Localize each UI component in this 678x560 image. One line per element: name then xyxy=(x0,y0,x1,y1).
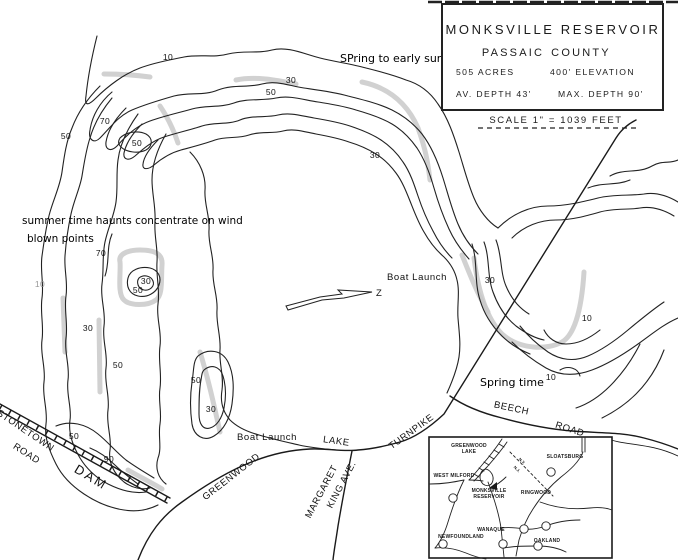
inset-sloatsburg-label: SLOATSBURG xyxy=(547,454,584,460)
depth-label: 50 xyxy=(61,131,71,141)
route-shield-icon xyxy=(520,525,528,533)
contour-line xyxy=(41,86,158,511)
inset-wanaque-label: WANAQUE xyxy=(477,527,505,533)
beech-road-line xyxy=(606,438,678,456)
highlight-stroke xyxy=(99,320,100,392)
route-shield-icon xyxy=(499,540,507,548)
contour-line xyxy=(576,344,640,408)
contour-line xyxy=(610,160,678,176)
depth-label: 10 xyxy=(35,279,45,289)
depth-label: 10 xyxy=(582,313,592,323)
greenwood-road-label: GREENWOOD xyxy=(201,451,263,503)
depth-label: 70 xyxy=(100,116,110,126)
route-shield-icon xyxy=(439,540,447,548)
title-box-elevation: 400' ELEVATION xyxy=(550,67,635,77)
depth-label: 30 xyxy=(83,323,93,333)
lake-road-label: LAKE xyxy=(322,434,350,449)
title-box-title: MONKSVILLE RESERVOIR xyxy=(445,22,660,37)
depth-label: 50 xyxy=(266,87,276,97)
inset-map: GREENWOOD LAKE SLOATSBURG WEST MILFORD M… xyxy=(429,437,612,559)
inset-greenwood-label2: LAKE xyxy=(462,449,477,455)
route-shield-icon xyxy=(542,522,550,530)
monksville-reservoir-map: Z 10 30 50 70 50 50 30 70 10 30 50 30 50… xyxy=(0,0,678,560)
inset-west-milford-label: WEST MILFORD xyxy=(433,473,474,479)
beech-road-label: BEECH xyxy=(493,399,530,417)
north-arrow: Z xyxy=(286,288,382,310)
boat-launch-label: Boat Launch xyxy=(387,272,447,283)
depth-label: 30 xyxy=(485,275,495,285)
depth-label: 50 xyxy=(113,360,123,370)
depth-label: 50 xyxy=(133,285,143,295)
dam-label: DAM xyxy=(72,461,111,493)
depth-label: 10 xyxy=(546,372,556,382)
contour-line xyxy=(143,130,460,393)
inset-monksville-label2: RESERVOIR xyxy=(473,494,504,500)
depth-label: 30 xyxy=(206,404,216,414)
north-arrow-label: Z xyxy=(376,288,382,299)
map-page: Z 10 30 50 70 50 50 30 70 10 30 50 30 50… xyxy=(0,0,678,560)
route-shield-icon xyxy=(547,468,555,476)
depth-label: 50 xyxy=(191,375,201,385)
depth-label: 30 xyxy=(286,75,296,85)
title-box-county-left: PASSAIC xyxy=(482,47,544,59)
inset-oakland-label: OAKLAND xyxy=(534,538,561,544)
contour-line xyxy=(520,302,664,359)
inset-ringwood-label: RINGWOOD xyxy=(521,490,551,496)
depth-label: 30 xyxy=(370,150,380,160)
depth-label: 90 xyxy=(104,454,114,464)
contour-line xyxy=(498,193,678,228)
depth-label: 50 xyxy=(132,138,142,148)
depth-label: 10 xyxy=(163,52,173,62)
depth-label: 50 xyxy=(69,431,79,441)
title-box-avg-depth: AV. DEPTH 43' xyxy=(456,89,532,99)
route-shield-icon xyxy=(449,494,457,502)
contour-line xyxy=(152,134,166,484)
scale-label: SCALE 1" = 1039 FEET xyxy=(489,115,622,126)
title-box-county-right: COUNTY xyxy=(551,47,611,59)
highlight-stroke xyxy=(63,298,65,352)
contour-line xyxy=(512,207,674,238)
highlight-stroke xyxy=(200,352,220,432)
title-box-acres: 505 ACRES xyxy=(456,67,514,77)
title-box-max-depth: MAX. DEPTH 90' xyxy=(558,89,644,99)
title-box: MONKSVILLE RESERVOIR PASSAIC COUNTY 505 … xyxy=(428,2,678,128)
north-arrow-icon xyxy=(286,290,372,310)
contour-line xyxy=(588,180,630,188)
depth-label: 70 xyxy=(96,248,106,258)
annotation-summer-haunts-2: blown points xyxy=(27,233,94,245)
boat-launch-label: Boat Launch xyxy=(237,432,297,443)
annotation-spring-time: Spring time xyxy=(480,376,544,389)
annotation-summer-haunts-1: summer time haunts concentrate on wind xyxy=(22,215,243,227)
inset-newfoundland-label: NEWFOUNDLAND xyxy=(438,534,484,540)
